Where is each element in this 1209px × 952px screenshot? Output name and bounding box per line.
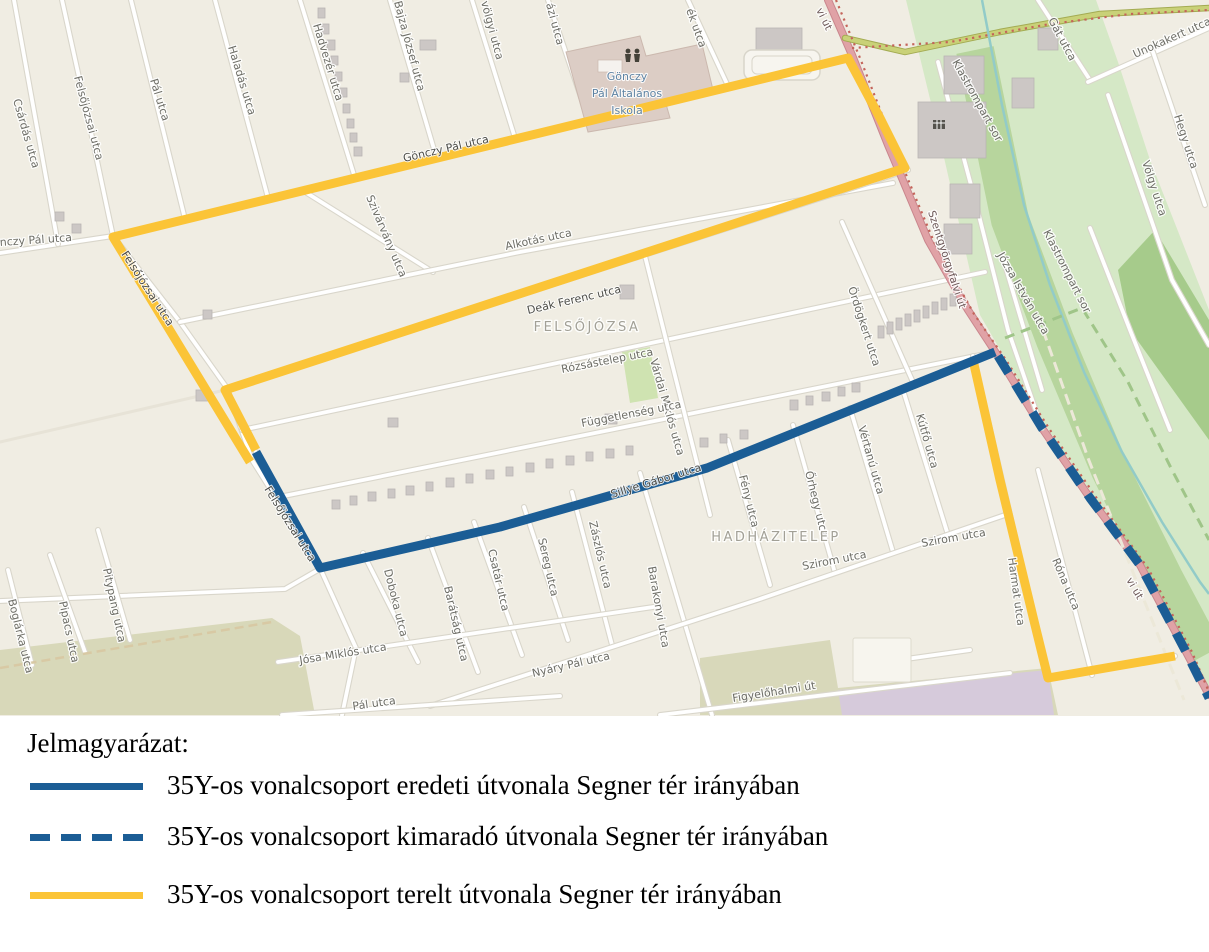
shop-icon — [933, 120, 945, 129]
poi-label: Iskola — [611, 104, 642, 117]
map-svg: Csárdás utcaFelsőjózsai utcaPál utcaHala… — [0, 0, 1209, 716]
legend-swatch-dashed-blue — [30, 834, 143, 841]
route-map-figure: Csárdás utcaFelsőjózsai utcaPál utcaHala… — [0, 0, 1209, 952]
place-label: HADHÁZITELEP — [711, 529, 841, 545]
legend-title: Jelmagyarázat: — [27, 728, 189, 759]
poi-label: Gönczy — [607, 70, 648, 83]
legend-label-omitted: 35Y-os vonalcsoport kimaradó útvonala Se… — [167, 821, 828, 852]
legend: Jelmagyarázat: 35Y-os vonalcsoport erede… — [0, 716, 1209, 952]
legend-swatch-solid-yellow — [30, 892, 143, 899]
map-canvas: Csárdás utcaFelsőjózsai utcaPál utcaHala… — [0, 0, 1209, 716]
legend-label-diverted: 35Y-os vonalcsoport terelt útvonala Segn… — [167, 879, 782, 910]
legend-label-original: 35Y-os vonalcsoport eredeti útvonala Seg… — [167, 770, 800, 801]
legend-swatch-solid-blue — [30, 783, 143, 790]
poi-label: Pál Általános — [592, 87, 663, 100]
place-label: FELSŐJÓZSA — [534, 319, 641, 335]
